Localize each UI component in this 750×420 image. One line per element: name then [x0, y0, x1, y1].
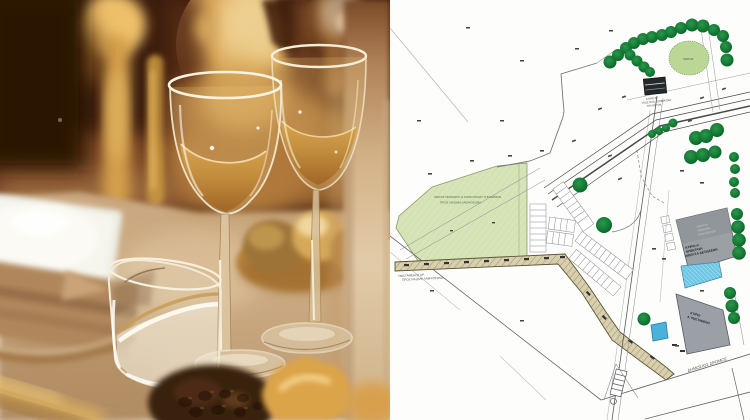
svg-text:ΠΡΟΣ ΝΑΞΙΜΗ ΛΑΜΨΟΣΟΝΑ: ΠΡΟΣ ΝΑΞΙΜΗ ΛΑΜΨΟΣΟΝΑ: [440, 201, 481, 205]
svg-text:ΧΩΡΟΣ: ΧΩΡΟΣ: [683, 57, 694, 61]
